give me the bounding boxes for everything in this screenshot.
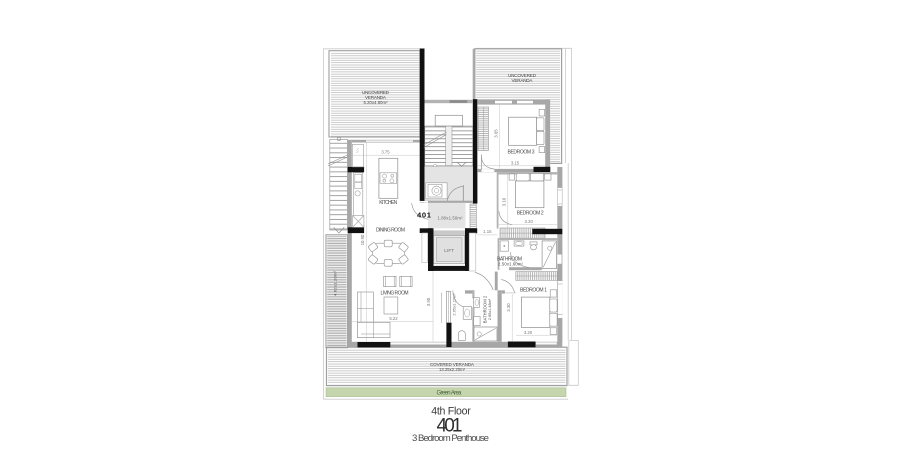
svg-text:4.62x1.20m²: 4.62x1.20m²: [333, 270, 338, 296]
svg-text:3.10: 3.10: [502, 197, 507, 206]
svg-text:3.90: 3.90: [426, 297, 431, 306]
svg-text:BEDROOM 1: BEDROOM 1: [520, 287, 547, 293]
svg-text:LIVING ROOM: LIVING ROOM: [381, 290, 409, 296]
svg-text:KITCHEN: KITCHEN: [379, 200, 397, 206]
svg-text:13.25x2.20m²: 13.25x2.20m²: [439, 367, 466, 372]
svg-text:BEDROOM 2: BEDROOM 2: [517, 211, 544, 217]
svg-text:401: 401: [417, 211, 432, 220]
svg-text:BEDROOM 3: BEDROOM 3: [508, 150, 535, 156]
svg-text:2.50x1.60m²: 2.50x1.60m²: [498, 261, 524, 266]
svg-text:Green Area: Green Area: [437, 391, 463, 397]
svg-text:BATHROOM 2: BATHROOM 2: [483, 295, 488, 323]
svg-text:3.65: 3.65: [494, 129, 499, 138]
svg-text:10.90: 10.90: [360, 234, 365, 245]
svg-text:5.22: 5.22: [389, 316, 398, 321]
svg-text:3 Bedroom Penthouse: 3 Bedroom Penthouse: [412, 433, 489, 444]
svg-text:LIFT: LIFT: [444, 248, 454, 253]
svg-text:3.20: 3.20: [524, 330, 533, 335]
svg-text:1.15: 1.15: [483, 229, 492, 234]
svg-text:2.65x1.27m²: 2.65x1.27m²: [452, 293, 457, 316]
svg-text:3.75: 3.75: [381, 150, 390, 155]
svg-text:DINING ROOM: DINING ROOM: [376, 228, 405, 234]
svg-text:3.15: 3.15: [511, 161, 520, 166]
svg-text:5.20x4.80m²: 5.20x4.80m²: [364, 100, 389, 105]
svg-text:1.80x1.50m²: 1.80x1.50m²: [438, 216, 464, 221]
svg-text:3.30: 3.30: [506, 303, 511, 312]
svg-text:2.65x1.48m²: 2.65x1.48m²: [488, 298, 492, 320]
svg-text:VERANDA: VERANDA: [512, 78, 534, 83]
svg-text:3.20: 3.20: [525, 219, 534, 224]
